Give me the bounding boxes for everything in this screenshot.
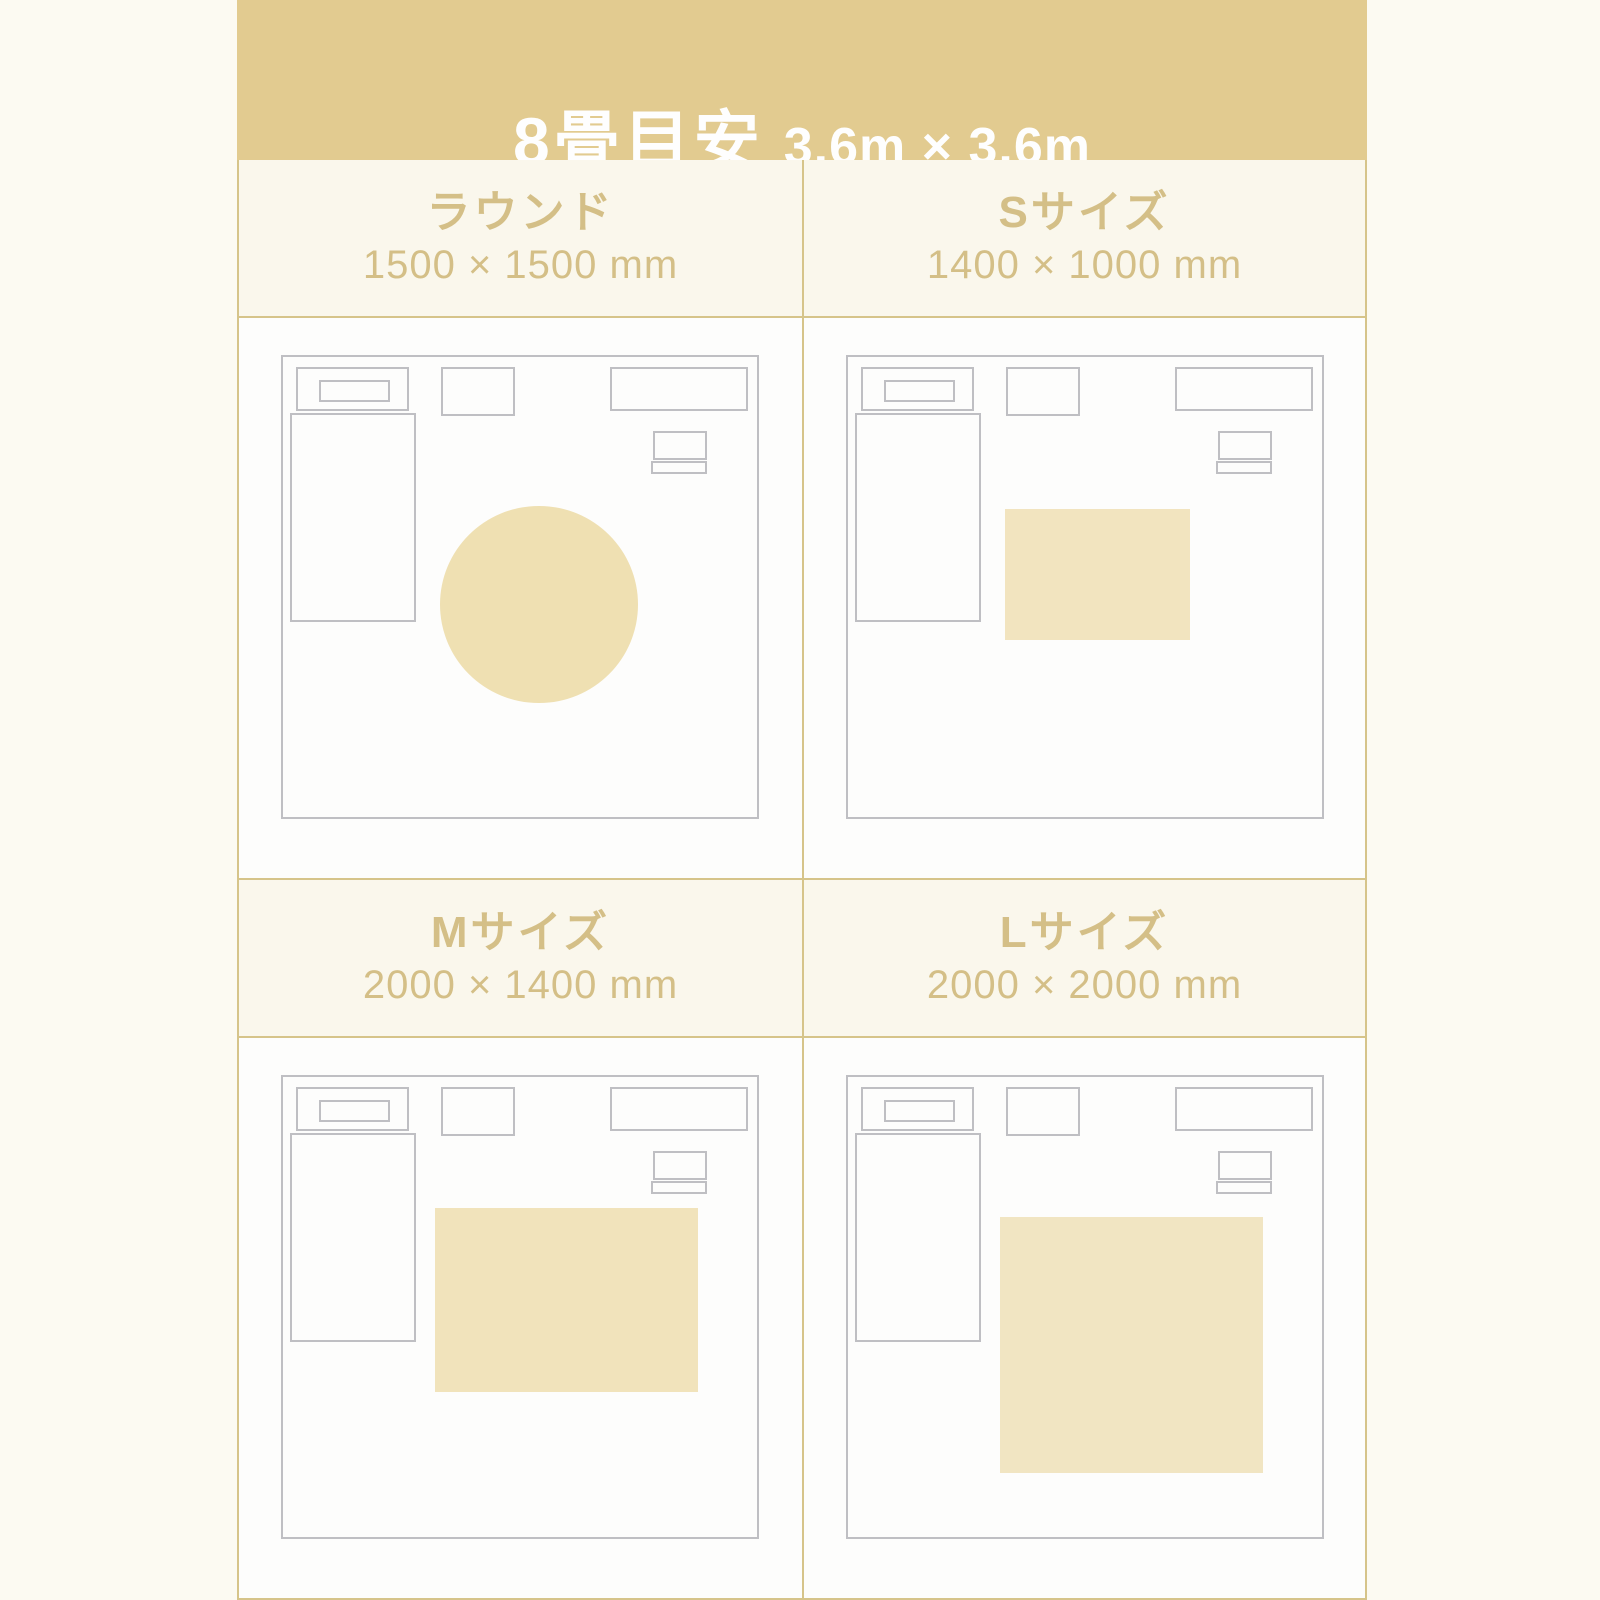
- size-panel-grid: ラウンド 1500 × 1500 mm Sサイズ 1400 × 1000 mm: [237, 160, 1367, 1600]
- size-panel: ラウンド 1500 × 1500 mm: [239, 160, 802, 880]
- desk: [610, 1087, 747, 1131]
- panel-header: Lサイズ 2000 × 2000 mm: [804, 880, 1365, 1038]
- rug: [435, 1208, 699, 1392]
- rug-size-guide: 8畳目安 3.6m × 3.6m ラウンド 1500 × 1500 mm Sサイ…: [0, 0, 1600, 1600]
- cabinet: [441, 1087, 515, 1136]
- size-dimensions: 2000 × 1400 mm: [363, 965, 678, 1005]
- bed-pillow: [319, 1100, 390, 1122]
- rug: [1000, 1217, 1264, 1472]
- chair-seat: [653, 431, 707, 460]
- panel-header: Mサイズ 2000 × 1400 mm: [239, 880, 802, 1038]
- size-dimensions: 1500 × 1500 mm: [363, 245, 678, 285]
- size-label: Mサイズ: [431, 911, 610, 955]
- rug: [1005, 509, 1189, 641]
- size-panel: Lサイズ 2000 × 2000 mm: [802, 880, 1365, 1598]
- chair-back: [1216, 461, 1272, 474]
- chair-seat: [1218, 1151, 1272, 1180]
- cabinet: [1006, 367, 1080, 416]
- room-outline: [846, 1075, 1324, 1539]
- desk: [1175, 1087, 1312, 1131]
- room-outline: [281, 1075, 759, 1539]
- chair-seat: [653, 1151, 707, 1180]
- room-diagram: [239, 1038, 802, 1598]
- bed-mattress: [855, 413, 981, 622]
- size-label: Sサイズ: [998, 191, 1170, 235]
- cabinet: [441, 367, 515, 416]
- bed-pillow: [884, 1100, 955, 1122]
- chair-back: [651, 461, 707, 474]
- size-dimensions: 2000 × 2000 mm: [927, 965, 1242, 1005]
- bed-pillow: [884, 380, 955, 402]
- bed-mattress: [855, 1133, 981, 1342]
- size-panel: Sサイズ 1400 × 1000 mm: [802, 160, 1365, 880]
- panel-header: ラウンド 1500 × 1500 mm: [239, 160, 802, 318]
- size-label: ラウンド: [427, 191, 615, 235]
- panel-header: Sサイズ 1400 × 1000 mm: [804, 160, 1365, 318]
- chair-back: [651, 1181, 707, 1194]
- bed-pillow: [319, 380, 390, 402]
- bed-mattress: [290, 413, 416, 622]
- room-diagram: [804, 1038, 1365, 1598]
- rug: [440, 506, 638, 703]
- chair-back: [1216, 1181, 1272, 1194]
- desk: [610, 367, 747, 411]
- room-diagram: [804, 318, 1365, 878]
- size-label: Lサイズ: [1000, 911, 1170, 955]
- bed-mattress: [290, 1133, 416, 1342]
- chair-seat: [1218, 431, 1272, 460]
- header-band: 8畳目安 3.6m × 3.6m: [237, 0, 1367, 160]
- room-outline: [281, 355, 759, 819]
- size-panel: Mサイズ 2000 × 1400 mm: [239, 880, 802, 1598]
- room-outline: [846, 355, 1324, 819]
- room-diagram: [239, 318, 802, 878]
- desk: [1175, 367, 1312, 411]
- cabinet: [1006, 1087, 1080, 1136]
- size-dimensions: 1400 × 1000 mm: [927, 245, 1242, 285]
